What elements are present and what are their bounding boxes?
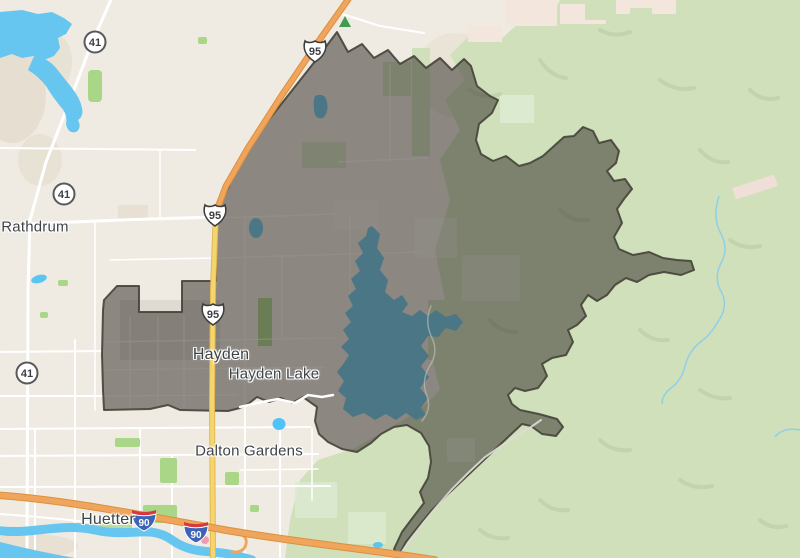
sr41-shield: 41	[17, 363, 38, 384]
city-label-dalton-gardens[interactable]: Dalton Gardens	[195, 443, 303, 460]
svg-text:41: 41	[21, 368, 33, 380]
svg-text:41: 41	[58, 189, 70, 201]
city-label-huetter[interactable]: Huetter	[81, 511, 135, 529]
sr41-shield: 41	[54, 184, 75, 205]
city-label-hayden-lake[interactable]: Hayden Lake	[229, 366, 320, 383]
svg-text:41: 41	[89, 37, 101, 49]
city-label-hayden[interactable]: Hayden	[193, 346, 249, 364]
svg-text:90: 90	[190, 530, 202, 541]
city-label-rathdrum[interactable]: Rathdrum	[1, 219, 68, 236]
map-layers: 95 95 95 41 41 41 90 90	[0, 0, 800, 558]
svg-text:95: 95	[207, 309, 219, 321]
map-canvas[interactable]: 95 95 95 41 41 41 90 90 Rathdrum Hayden …	[0, 0, 800, 558]
svg-text:95: 95	[209, 210, 221, 222]
sr41-shield: 41	[85, 32, 106, 53]
svg-text:90: 90	[138, 518, 150, 529]
svg-text:95: 95	[309, 46, 321, 58]
